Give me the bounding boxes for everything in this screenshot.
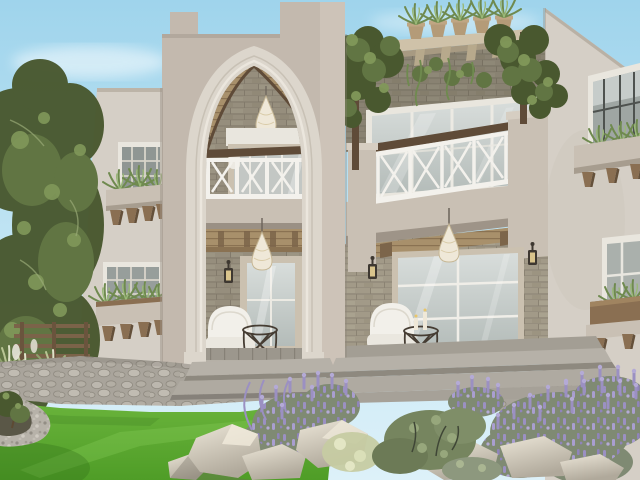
scene-canvas: [0, 0, 640, 480]
balcony-pier-right: [508, 112, 548, 260]
upper-balcony-slab: [204, 199, 304, 227]
villa-exterior-render: [0, 0, 640, 480]
central-tower: [160, 2, 345, 376]
